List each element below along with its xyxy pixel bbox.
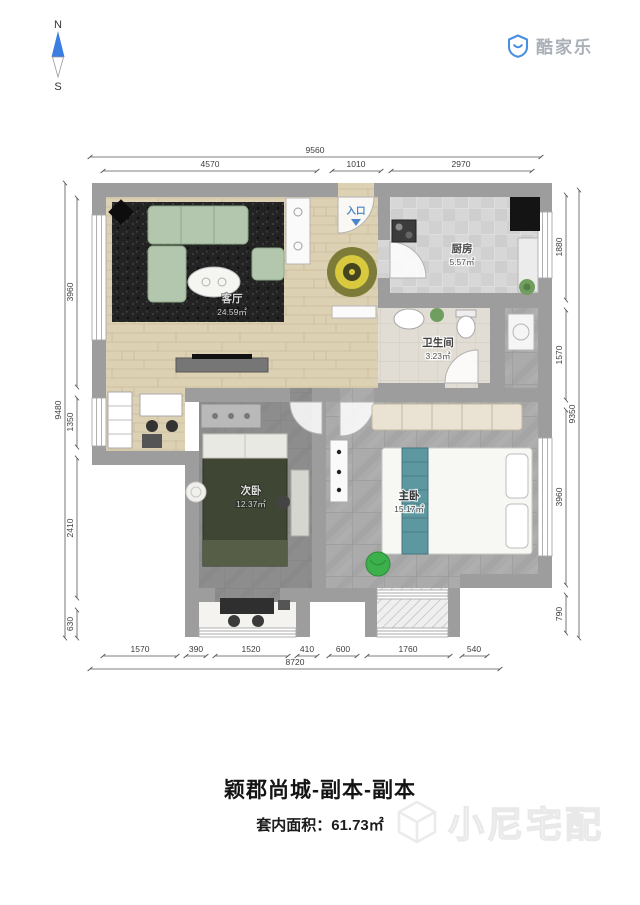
wall-balcony-right bbox=[448, 602, 460, 637]
window-balcony-bottom bbox=[377, 628, 448, 637]
window-master-right bbox=[538, 438, 552, 556]
dim-top-2: 2970 bbox=[452, 159, 471, 169]
dim-bottom-1: 390 bbox=[189, 644, 203, 654]
alcove-chair-2 bbox=[252, 615, 264, 627]
kitchen-area: 5.57㎡ bbox=[449, 257, 475, 267]
dim-top-1: 1010 bbox=[347, 159, 366, 169]
dim-right-0: 1880 bbox=[554, 237, 564, 256]
wall-balcony-left bbox=[365, 602, 377, 637]
fridge bbox=[510, 197, 540, 231]
dim-bottom-2: 1520 bbox=[242, 644, 261, 654]
hall-console bbox=[332, 306, 376, 318]
toilet bbox=[456, 310, 476, 338]
wall-bedroom2-bottom-left bbox=[185, 588, 215, 602]
brand-logo-text: 酷家乐 bbox=[536, 33, 593, 58]
wall-living-bottom bbox=[185, 388, 290, 402]
bedroom2-chair bbox=[276, 495, 290, 509]
dim-right-total: 9350 bbox=[567, 404, 577, 423]
alcove-chair-1 bbox=[228, 615, 240, 627]
area-label: 套内面积： bbox=[256, 817, 331, 834]
wall-alcove-left bbox=[185, 602, 199, 637]
kitchen-plant-center bbox=[524, 284, 531, 291]
master-wardrobe bbox=[372, 404, 522, 430]
window-master-balcony bbox=[377, 590, 448, 599]
window-living-left bbox=[92, 215, 106, 340]
wall-kitchen-bottom bbox=[378, 293, 552, 308]
dim-right-1: 1570 bbox=[554, 345, 564, 364]
dim-bottom-3: 410 bbox=[300, 644, 314, 654]
dim-top-0: 4570 bbox=[201, 159, 220, 169]
wall-kitchen-left-upper bbox=[378, 183, 390, 240]
dim-left-3: 630 bbox=[65, 617, 75, 631]
alcove-desk bbox=[220, 598, 274, 614]
wall-bedroom2-bottom-right bbox=[280, 588, 326, 602]
window-kitchen-right bbox=[538, 212, 552, 278]
wall-top-left bbox=[92, 183, 338, 197]
wall-bedroom2-left bbox=[185, 451, 199, 602]
wall-bottom-right-step bbox=[460, 574, 552, 588]
dim-left-1: 1350 bbox=[65, 412, 75, 431]
compass-south-label: S bbox=[54, 81, 61, 93]
page: N S bbox=[0, 0, 640, 905]
wall-nook-bottom bbox=[92, 451, 199, 465]
dim-bottom-0: 1570 bbox=[131, 644, 150, 654]
plan-title: 颖郡尚城-副本-副本 bbox=[0, 774, 640, 804]
utility-niche bbox=[508, 314, 534, 350]
cooktop bbox=[392, 220, 416, 242]
dim-left-total: 9480 bbox=[53, 400, 63, 419]
living-name: 客厅 bbox=[221, 292, 243, 305]
wall-corridor-stub bbox=[326, 388, 340, 402]
window-nook-left bbox=[92, 398, 106, 446]
bathroom-name: 卫生间 bbox=[422, 336, 454, 349]
compass: N S bbox=[52, 19, 65, 93]
bedroom2-desk bbox=[291, 470, 309, 536]
dim-right-3: 790 bbox=[554, 607, 564, 621]
wall-alcove-right bbox=[296, 602, 310, 637]
dim-top-total: 9560 bbox=[306, 145, 325, 155]
floor-plan-canvas: N S bbox=[0, 0, 640, 905]
window-alcove-bottom bbox=[199, 628, 296, 637]
compass-needle-north-icon bbox=[52, 31, 65, 57]
compass-needle-south-icon bbox=[53, 57, 64, 77]
master-name: 主卧 bbox=[399, 489, 420, 502]
bedroom2-wardrobe bbox=[201, 404, 261, 428]
room-label-kitchen: 厨房 5.57㎡ bbox=[449, 242, 475, 267]
bathroom-sink bbox=[394, 309, 424, 329]
sideboard bbox=[286, 198, 310, 264]
alcove-item bbox=[278, 600, 290, 610]
dim-bottom-total: 8720 bbox=[286, 657, 305, 667]
wall-top-right bbox=[374, 183, 552, 197]
bedroom2-rug bbox=[186, 482, 206, 502]
bathroom-area: 3.23㎡ bbox=[425, 351, 451, 361]
wall-master-bottom-left bbox=[326, 588, 377, 602]
wall-master-bottom-right bbox=[448, 588, 460, 602]
living-area: 24.59㎡ bbox=[217, 307, 247, 317]
dim-right-2: 3960 bbox=[554, 487, 564, 506]
room-label-bathroom: 卫生间 3.23㎡ bbox=[422, 336, 454, 361]
beanbag bbox=[366, 552, 390, 576]
dim-bottom-6: 540 bbox=[467, 644, 481, 654]
bedroom2-area: 12.37㎡ bbox=[236, 499, 266, 509]
dim-bottom-4: 600 bbox=[336, 644, 350, 654]
compass-north-label: N bbox=[54, 19, 62, 31]
brand-logo: 酷家乐 bbox=[506, 33, 593, 58]
round-rug bbox=[327, 247, 377, 297]
dim-bottom-5: 1760 bbox=[399, 644, 418, 654]
entry-threshold bbox=[338, 183, 374, 197]
kujiale-shield-icon bbox=[506, 34, 530, 58]
master-cabinet bbox=[330, 440, 348, 502]
master-area: 15.17㎡ bbox=[394, 504, 424, 514]
entry-label: 入口 bbox=[345, 206, 365, 217]
plan-area-line: 套内面积：61.73㎡ bbox=[0, 814, 640, 835]
washer bbox=[508, 314, 534, 350]
dim-left-2: 2410 bbox=[65, 518, 75, 537]
bathroom-plant-icon bbox=[430, 308, 444, 322]
bedroom2-name: 次卧 bbox=[241, 484, 262, 497]
wall-master-top bbox=[374, 388, 538, 402]
kitchen-name: 厨房 bbox=[452, 242, 473, 255]
area-value: 61.73㎡ bbox=[331, 817, 384, 834]
dim-left-0: 3960 bbox=[65, 282, 75, 301]
